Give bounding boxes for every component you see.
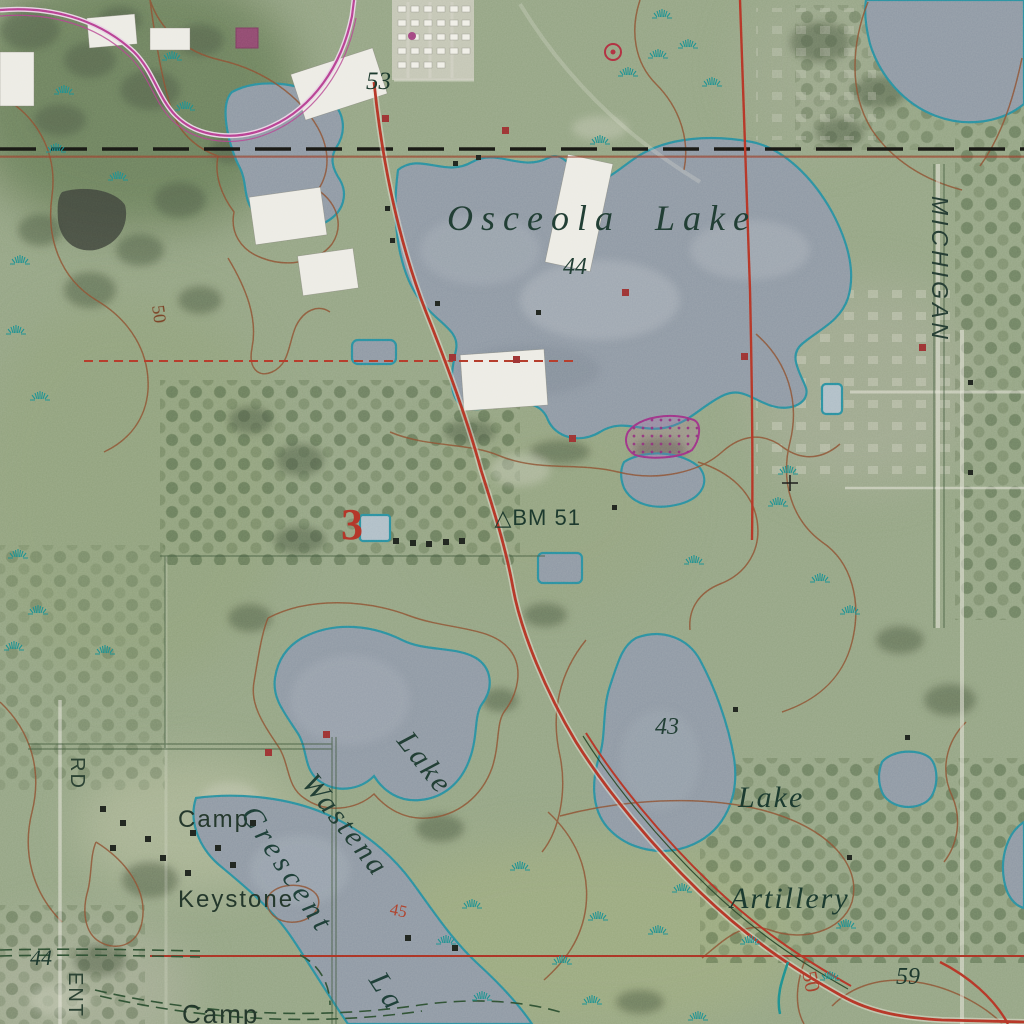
rd-road-label: RD xyxy=(66,757,88,790)
contour-50-w-label: 50 xyxy=(148,304,170,325)
topo-map: Osceola Lake 44 53 MICHIGAN △BM 51 3 Lak… xyxy=(0,0,1024,1024)
osceola-lake-label: Osceola Lake xyxy=(447,198,757,238)
spot-elevation-44-sw: 44 xyxy=(30,946,52,971)
benchmark-label: △BM 51 xyxy=(466,481,581,555)
michigan-road-label: MICHIGAN xyxy=(926,196,952,343)
lake43-elevation-label: 43 xyxy=(655,714,679,741)
wastena-line1: Lake xyxy=(359,686,490,841)
camp-partial-label: Camp xyxy=(182,1000,259,1024)
artillery-line1: Lake xyxy=(730,781,850,815)
spot-elevation-59: 59 xyxy=(896,964,920,991)
ent-road-label: ENT xyxy=(64,972,86,1018)
benchmark-triangle-icon: △ xyxy=(494,505,512,530)
section-number-3: 3 xyxy=(341,500,363,549)
benchmark-text: BM 51 xyxy=(512,505,581,530)
osceola-elevation-label: 44 xyxy=(563,254,587,281)
camp-keystone-line2: Keystone xyxy=(178,887,294,914)
spot-elevation-53: 53 xyxy=(366,68,391,96)
lake-artillery-label: Lake Artillery xyxy=(730,714,850,983)
artillery-line2: Artillery xyxy=(730,882,850,916)
